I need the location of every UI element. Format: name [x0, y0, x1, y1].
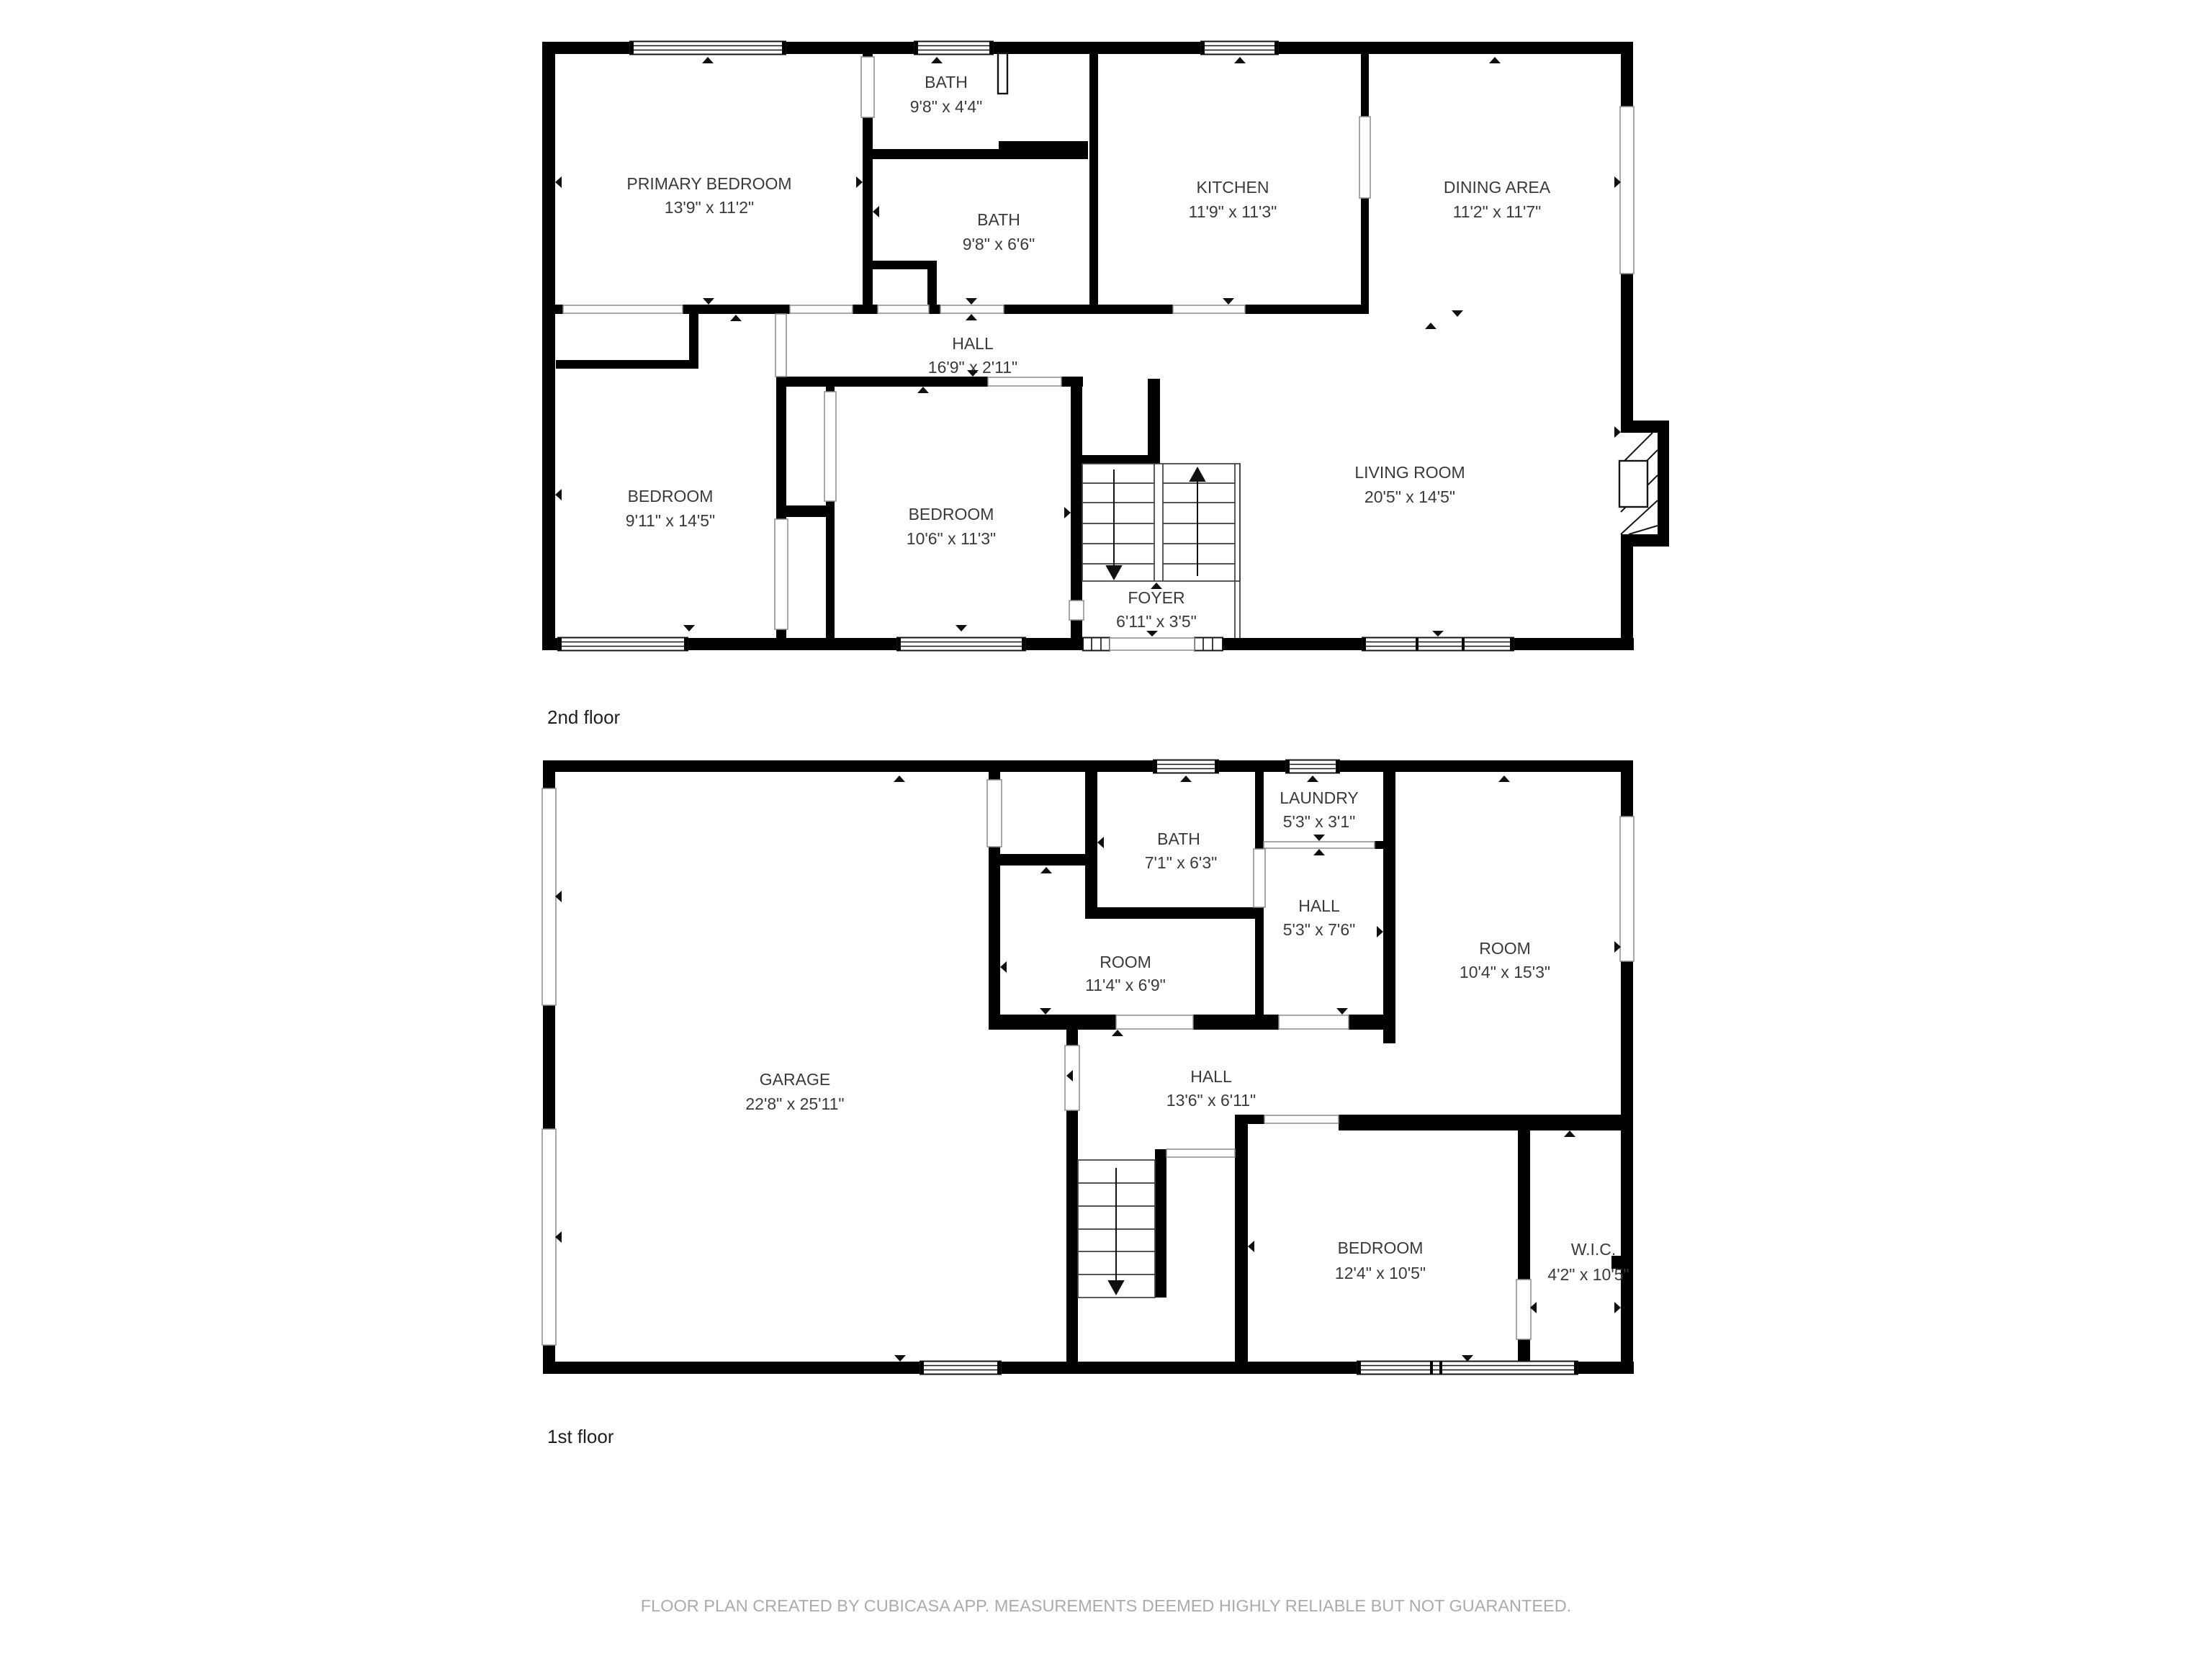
svg-text:BEDROOM: BEDROOM: [1338, 1238, 1424, 1257]
svg-text:9'8" x 4'4": 9'8" x 4'4": [910, 97, 983, 116]
svg-text:LIVING ROOM: LIVING ROOM: [1354, 463, 1465, 482]
svg-text:6'11" x 3'5": 6'11" x 3'5": [1116, 612, 1197, 631]
svg-text:BATH: BATH: [1157, 829, 1200, 848]
svg-text:HALL: HALL: [1298, 896, 1340, 915]
svg-text:W.I.C.: W.I.C.: [1571, 1240, 1617, 1259]
svg-text:FLOOR PLAN CREATED BY CUBICASA: FLOOR PLAN CREATED BY CUBICASA APP. MEAS…: [641, 1596, 1571, 1615]
svg-text:12'4" x 10'5": 12'4" x 10'5": [1335, 1264, 1426, 1282]
svg-text:22'8" x 25'11": 22'8" x 25'11": [745, 1094, 844, 1113]
svg-text:2nd floor: 2nd floor: [547, 706, 621, 728]
svg-text:10'4" x 15'3": 10'4" x 15'3": [1460, 963, 1550, 981]
svg-text:PRIMARY BEDROOM: PRIMARY BEDROOM: [626, 174, 791, 193]
svg-text:5'3" x 7'6": 5'3" x 7'6": [1283, 920, 1356, 939]
svg-text:13'9" x 11'2": 13'9" x 11'2": [665, 198, 754, 217]
svg-text:11'2" x 11'7": 11'2" x 11'7": [1453, 202, 1542, 221]
svg-text:BEDROOM: BEDROOM: [628, 487, 714, 505]
svg-text:5'3" x 3'1": 5'3" x 3'1": [1283, 812, 1356, 831]
svg-text:ROOM: ROOM: [1100, 953, 1151, 971]
svg-text:KITCHEN: KITCHEN: [1197, 178, 1269, 197]
svg-text:FOYER: FOYER: [1128, 588, 1184, 607]
svg-text:HALL: HALL: [1190, 1067, 1232, 1086]
svg-text:DINING AREA: DINING AREA: [1444, 178, 1551, 197]
svg-text:20'5" x 14'5": 20'5" x 14'5": [1364, 487, 1455, 506]
svg-text:1st floor: 1st floor: [547, 1426, 614, 1447]
svg-text:GARAGE: GARAGE: [760, 1070, 830, 1089]
svg-text:7'1" x 6'3": 7'1" x 6'3": [1145, 853, 1218, 872]
svg-text:4'2" x 10'5": 4'2" x 10'5": [1547, 1265, 1629, 1284]
svg-text:HALL: HALL: [952, 334, 994, 353]
svg-text:LAUNDRY: LAUNDRY: [1280, 788, 1359, 807]
svg-text:11'9" x 11'3": 11'9" x 11'3": [1189, 202, 1277, 221]
svg-text:BATH: BATH: [925, 73, 968, 91]
svg-text:11'4" x 6'9": 11'4" x 6'9": [1085, 976, 1166, 994]
svg-text:10'6" x 11'3": 10'6" x 11'3": [907, 529, 996, 548]
svg-text:BATH: BATH: [977, 210, 1020, 229]
svg-text:BEDROOM: BEDROOM: [909, 505, 994, 523]
svg-text:9'8" x 6'6": 9'8" x 6'6": [963, 235, 1035, 253]
svg-text:13'6" x 6'11": 13'6" x 6'11": [1166, 1091, 1256, 1110]
svg-text:9'11" x 14'5": 9'11" x 14'5": [626, 511, 715, 530]
svg-text:ROOM: ROOM: [1479, 939, 1531, 958]
